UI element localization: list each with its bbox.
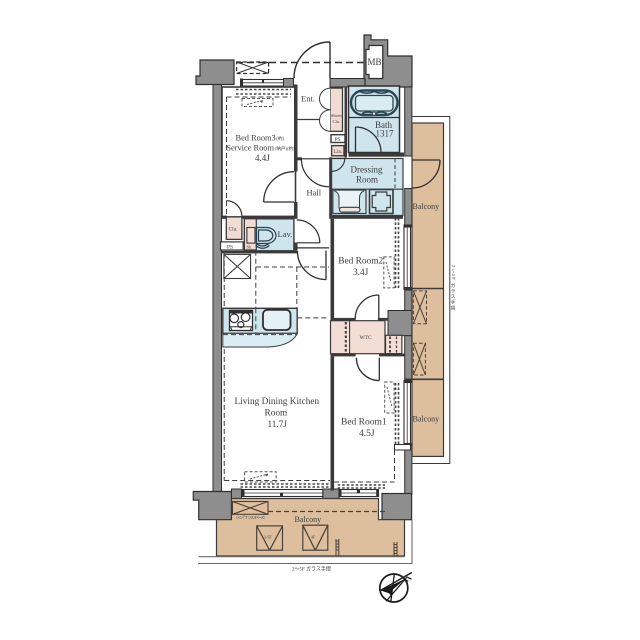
svg-text:2〜5F ガラス手摺: 2〜5F ガラス手摺 [292, 566, 331, 573]
svg-text:Room: Room [265, 409, 288, 419]
svg-text:3.4J: 3.4J [353, 268, 369, 278]
svg-text:Balcony: Balcony [295, 515, 322, 524]
svg-text:Balcony: Balcony [413, 415, 440, 424]
svg-text:（メンテナンススペース）: （メンテナンススペース） [234, 514, 267, 519]
svg-text:(約): (約) [276, 135, 284, 142]
svg-text:2〜5F ガラス手摺: 2〜5F ガラス手摺 [450, 265, 456, 311]
svg-text:Hall: Hall [307, 187, 322, 197]
svg-text:Shoes: Shoes [331, 113, 342, 118]
svg-text:3-5F: 3-5F [264, 535, 272, 540]
svg-text:MB: MB [368, 57, 382, 67]
svg-text:Lin.: Lin. [334, 149, 344, 155]
svg-text:Sh.: Sh. [247, 245, 253, 250]
svg-text:PS: PS [335, 137, 341, 143]
svg-text:Bed Room2: Bed Room2 [338, 256, 383, 266]
svg-text:Balcony: Balcony [413, 202, 440, 211]
svg-text:Cla.: Cla. [333, 119, 340, 124]
svg-text:11.7J: 11.7J [268, 420, 288, 430]
svg-text:Bed Room1: Bed Room1 [341, 418, 387, 428]
svg-text:4.5J: 4.5J [359, 429, 375, 439]
svg-text:Service Room: Service Room [226, 143, 274, 152]
svg-text:Dressing: Dressing [351, 165, 383, 175]
svg-text:Living Dining Kitchen: Living Dining Kitchen [235, 397, 320, 407]
svg-text:PS: PS [227, 245, 233, 251]
svg-text:Bed Room3: Bed Room3 [236, 133, 276, 142]
svg-text:(納戸)(約): (納戸)(約) [275, 145, 295, 152]
svg-text:Ent.: Ent. [301, 94, 315, 104]
svg-text:Room: Room [356, 175, 378, 185]
svg-text:1317: 1317 [376, 129, 395, 139]
svg-text:Cla.: Cla. [229, 227, 239, 233]
svg-text:Lav.: Lav. [278, 229, 293, 239]
svg-text:4.4J: 4.4J [255, 153, 270, 163]
svg-text:WTC: WTC [360, 335, 373, 341]
